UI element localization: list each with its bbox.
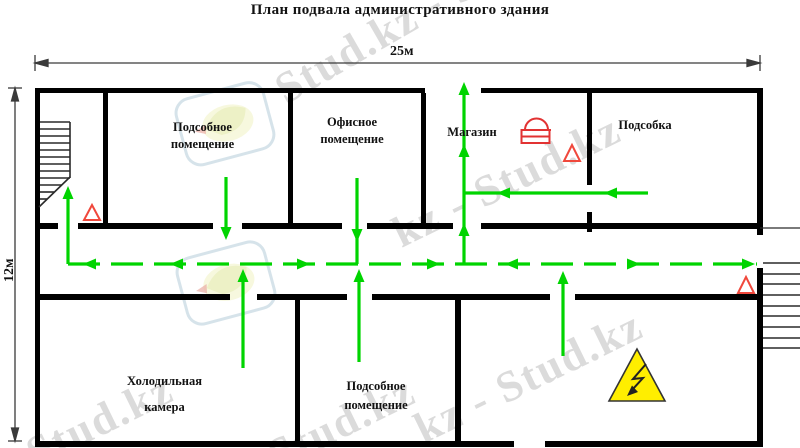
width-dimension-label: 25м <box>390 44 414 60</box>
room-label-line: помещение <box>316 396 436 415</box>
room-label-storeroom: Подсобка <box>600 117 690 134</box>
electrical-hazard-icon <box>609 349 665 401</box>
room-label-line: Холодильная <box>102 368 227 394</box>
room-label-line: Подсобное <box>316 377 436 396</box>
room-label-office: Офисное помещение <box>302 114 402 148</box>
room-label-cold-room: Холодильная камера <box>102 368 227 420</box>
room-label-line: камера <box>102 394 227 420</box>
room-label-utility-bottom: Подсобное помещение <box>316 377 436 415</box>
plan-title: План подвала административного здания <box>0 2 800 19</box>
room-label-line: помещение <box>145 136 260 153</box>
room-label-line: помещение <box>302 131 402 148</box>
floor-plan: Stud.kz - Stud kz - Stud.kz kz - Stud.kz… <box>0 0 800 448</box>
room-label-utility-top: Подсобное помещение <box>145 119 260 153</box>
room-label-line: Подсобное <box>145 119 260 136</box>
right-staircase-icon <box>760 228 800 348</box>
height-dimension-label: 12м <box>2 258 18 282</box>
room-label-shop: Магазин <box>431 124 513 141</box>
studkz-logo <box>174 239 279 328</box>
warning-triangle-icon <box>84 145 754 293</box>
route-arrowheads <box>63 82 756 284</box>
fire-phone-icon <box>521 119 551 144</box>
room-label-line: Офисное <box>302 114 402 131</box>
